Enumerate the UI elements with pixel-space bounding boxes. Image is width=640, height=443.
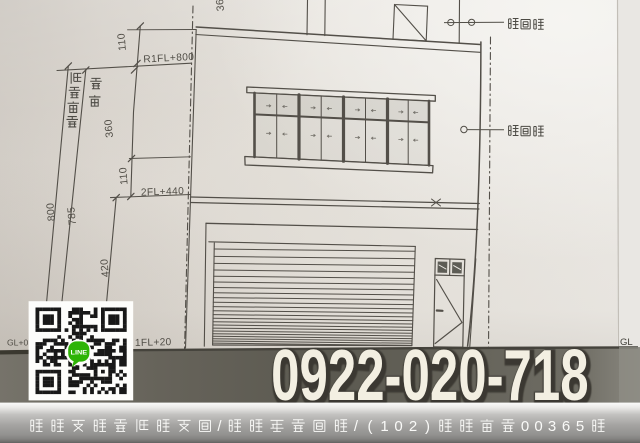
svg-text:): )	[425, 418, 430, 435]
svg-text:420: 420	[98, 258, 112, 277]
svg-text:GL+0: GL+0	[7, 338, 28, 348]
svg-text:5: 5	[576, 418, 584, 435]
svg-text:785: 785	[65, 206, 79, 225]
svg-text:360: 360	[102, 119, 116, 138]
svg-text:0: 0	[521, 418, 529, 435]
svg-text:3: 3	[548, 418, 556, 435]
svg-text:LINE: LINE	[71, 349, 88, 356]
svg-text:GL: GL	[620, 337, 633, 348]
svg-text:(: (	[368, 418, 373, 435]
svg-text:110: 110	[115, 33, 128, 52]
svg-text:2FL+440: 2FL+440	[141, 186, 185, 199]
svg-text:800: 800	[44, 202, 58, 221]
svg-text:6: 6	[562, 418, 570, 435]
svg-text:1: 1	[380, 418, 388, 435]
svg-text:0: 0	[534, 418, 542, 435]
svg-text:2: 2	[409, 418, 417, 435]
svg-text:360: 360	[213, 0, 227, 12]
svg-text:0: 0	[394, 418, 402, 435]
svg-text:110: 110	[117, 167, 130, 186]
svg-text:1FL+20: 1FL+20	[135, 337, 172, 349]
